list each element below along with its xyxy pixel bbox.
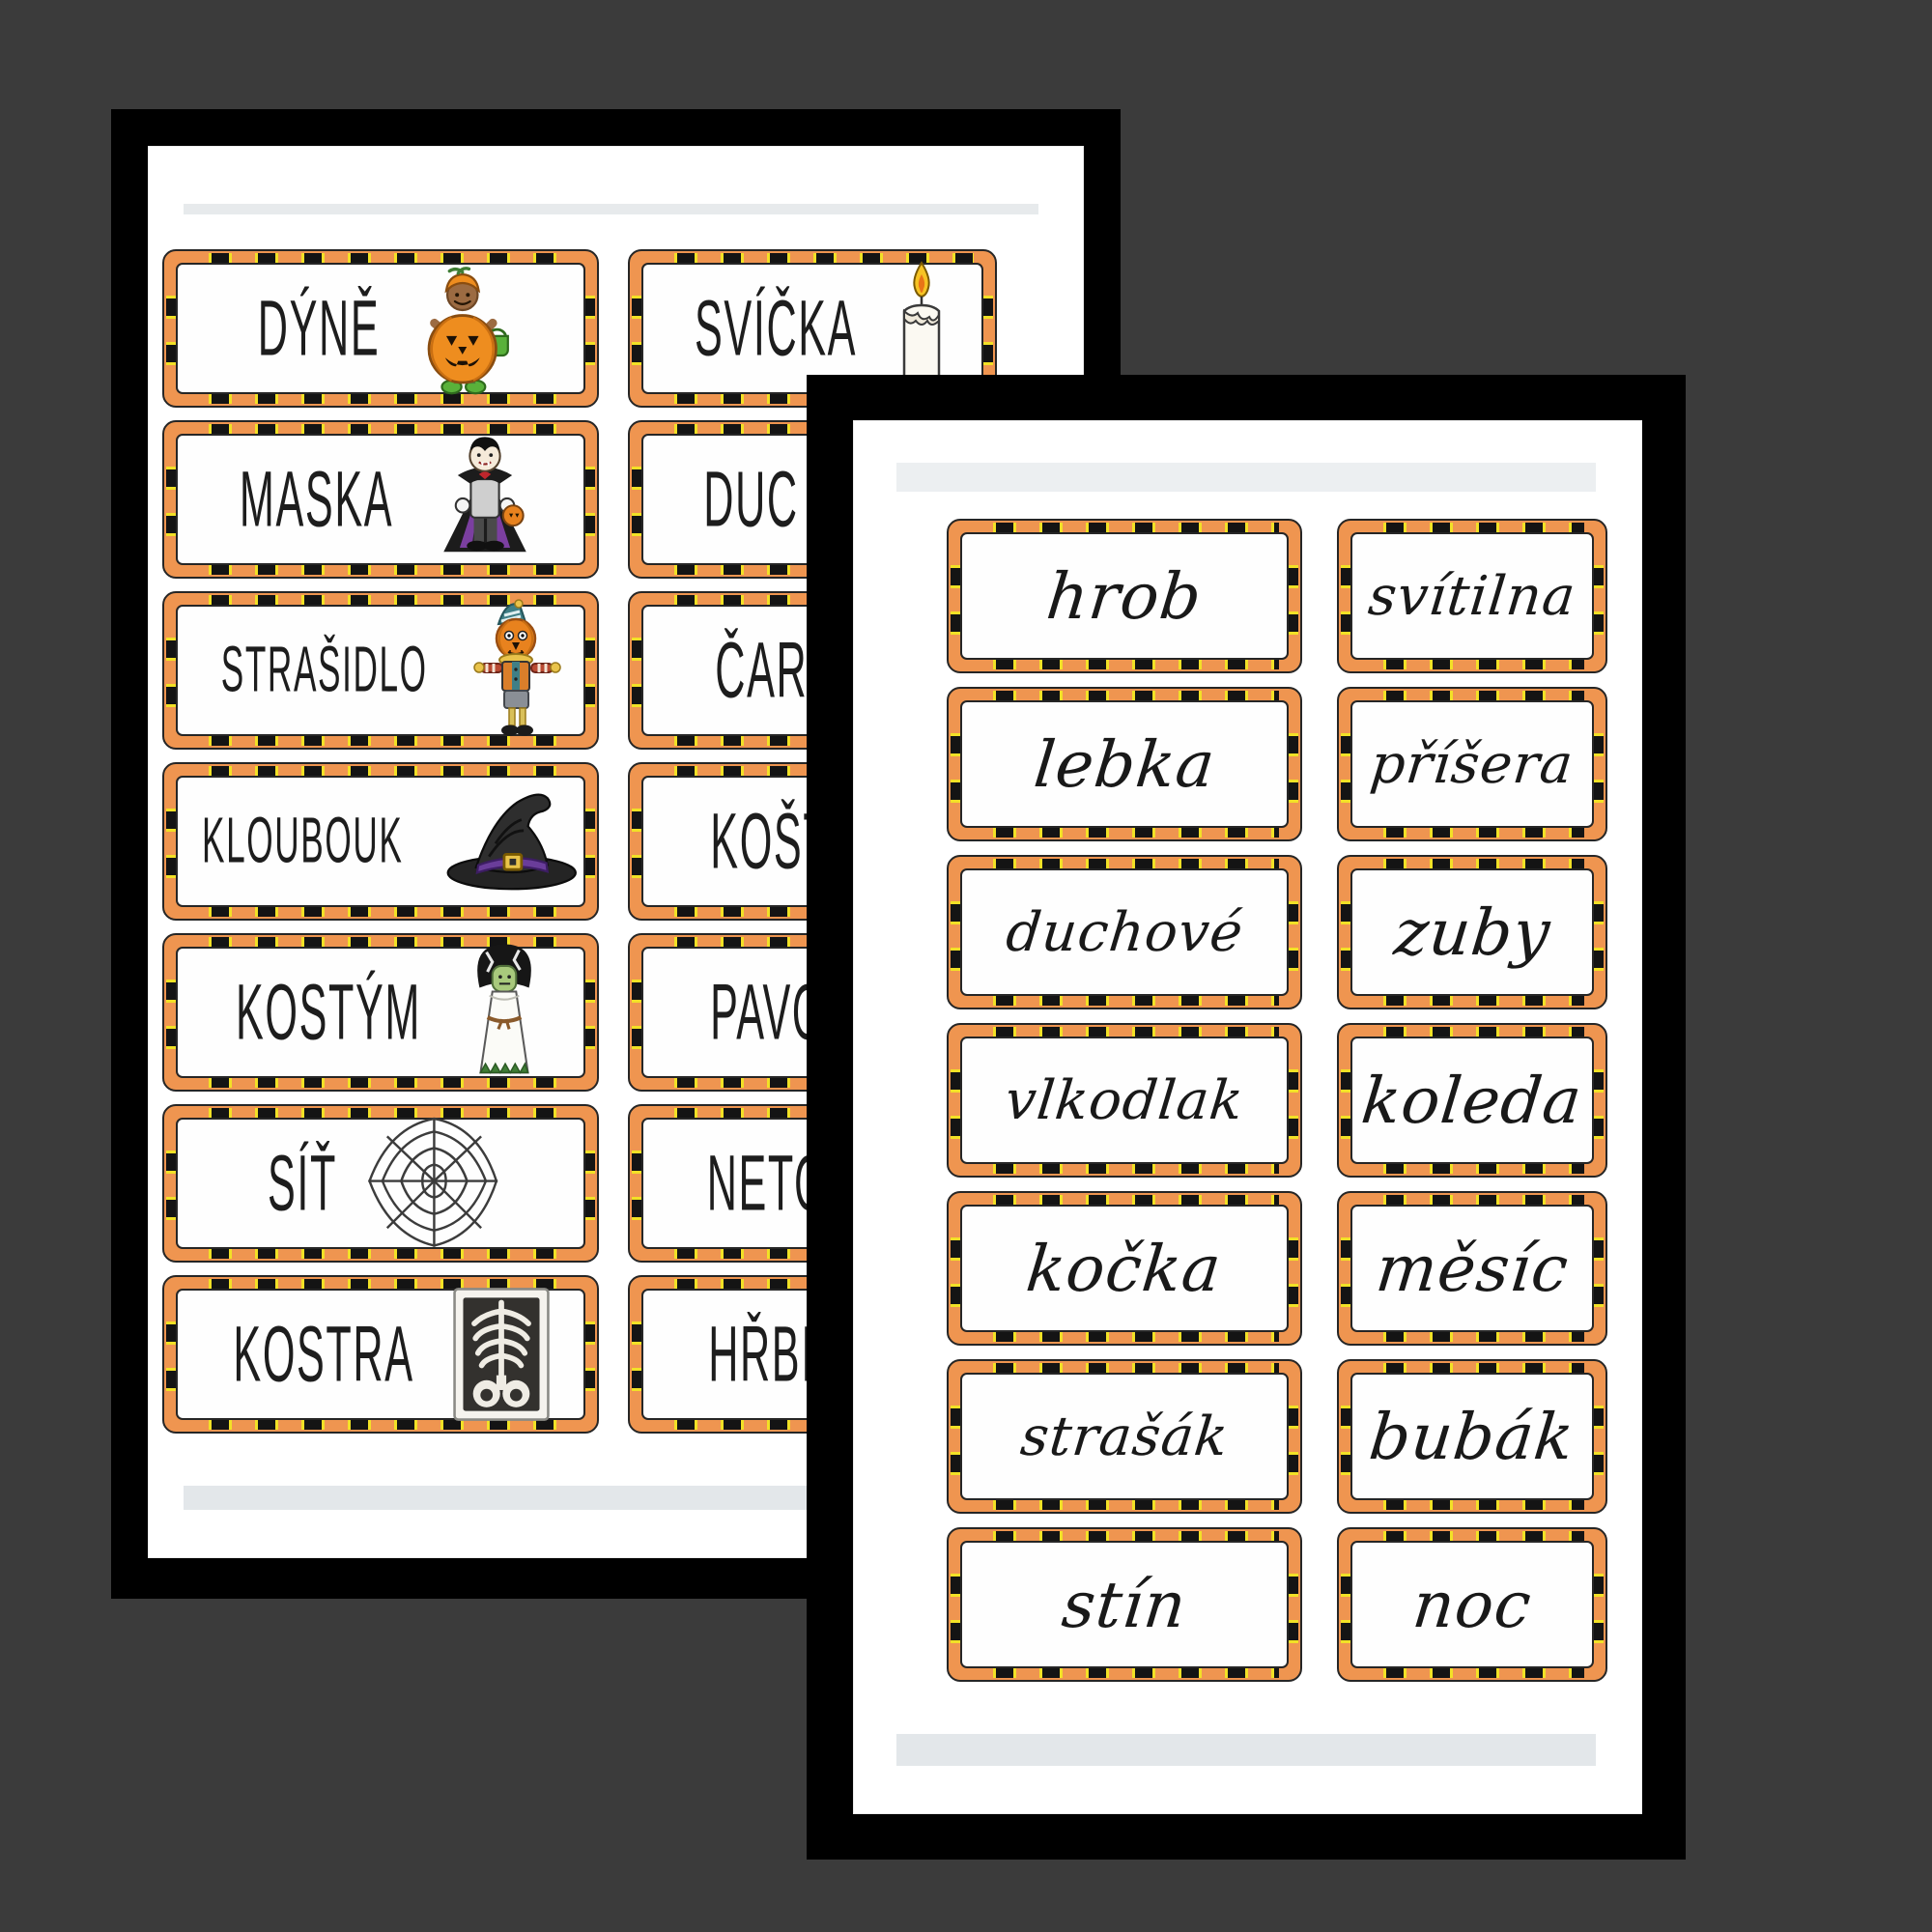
back-card-left: KOSTRA bbox=[162, 1275, 599, 1434]
back-card-left: STRAŠIDLO bbox=[162, 591, 599, 750]
card-stripe-border bbox=[1360, 1531, 1584, 1541]
pumpkin-kid-icon bbox=[411, 264, 519, 393]
card-stripe-border bbox=[970, 1164, 1279, 1174]
card-stripe-border bbox=[1341, 1046, 1350, 1154]
card-stripe-border bbox=[970, 1195, 1279, 1205]
card-content: noc bbox=[1352, 1543, 1592, 1666]
card-stripe-border bbox=[1594, 1550, 1604, 1659]
card-stripe-border bbox=[1360, 1332, 1584, 1342]
card-stripe-border bbox=[970, 1027, 1279, 1037]
screenshot-canvas: DÝNĚ SVÍČKA MASKA DUC STRAŠIDLO bbox=[0, 0, 1932, 1932]
front-card-left: kočka bbox=[947, 1191, 1302, 1346]
vampire-icon bbox=[429, 433, 541, 566]
witch-hat-icon bbox=[443, 787, 584, 895]
card-stripe-border bbox=[970, 660, 1279, 669]
front-card-left: stín bbox=[947, 1527, 1302, 1682]
card-stripe-border bbox=[1289, 1382, 1298, 1491]
spider-web-icon bbox=[361, 1117, 502, 1250]
card-stripe-border bbox=[1360, 996, 1584, 1006]
card-content: STRAŠIDLO bbox=[178, 607, 583, 734]
card-stripe-border bbox=[1360, 660, 1584, 669]
card-content: SÍŤ bbox=[178, 1120, 583, 1247]
front-card-right: bubák bbox=[1337, 1359, 1607, 1514]
card-word: zuby bbox=[1391, 895, 1554, 970]
card-word: noc bbox=[1409, 1568, 1535, 1642]
card-stripe-border bbox=[1360, 1668, 1584, 1678]
front-worksheet-page: hrob svítilna lebka příšera duchové bbox=[853, 420, 1642, 1814]
card-stripe-border bbox=[1289, 710, 1298, 818]
skeleton-icon bbox=[452, 1286, 551, 1423]
card-word: KOSTÝM bbox=[236, 967, 421, 1058]
card-stripe-border bbox=[1341, 878, 1350, 986]
card-stripe-border bbox=[1594, 542, 1604, 650]
front-card-left: lebka bbox=[947, 687, 1302, 841]
card-stripe-border bbox=[166, 1127, 176, 1239]
front-card-left: vlkodlak bbox=[947, 1023, 1302, 1178]
card-stripe-border bbox=[166, 1298, 176, 1410]
card-stripe-border bbox=[1289, 1214, 1298, 1322]
card-word: bubák bbox=[1366, 1400, 1577, 1474]
card-stripe-border bbox=[1360, 691, 1584, 700]
card-stripe-border bbox=[585, 785, 595, 897]
card-stripe-border bbox=[185, 907, 576, 917]
card-word: KLOUBOUK bbox=[202, 805, 403, 878]
back-card-left: DÝNĚ bbox=[162, 249, 599, 408]
card-content: vlkodlak bbox=[962, 1038, 1287, 1162]
card-word: DUC bbox=[703, 454, 798, 545]
page-edge-strip bbox=[896, 463, 1596, 492]
card-content: duchové bbox=[962, 870, 1287, 994]
card-stripe-border bbox=[1341, 1550, 1350, 1659]
card-content: měsíc bbox=[1352, 1207, 1592, 1330]
card-word: koleda bbox=[1358, 1064, 1586, 1138]
card-stripe-border bbox=[585, 614, 595, 726]
card-word: MASKA bbox=[240, 454, 393, 545]
front-card-right: měsíc bbox=[1337, 1191, 1607, 1346]
card-stripe-border bbox=[1289, 878, 1298, 986]
card-word: svítilna bbox=[1366, 565, 1579, 628]
front-card-right: zuby bbox=[1337, 855, 1607, 1009]
card-content: KOSTRA bbox=[178, 1291, 583, 1418]
back-card-left: KOSTÝM bbox=[162, 933, 599, 1092]
card-stripe-border bbox=[1289, 1046, 1298, 1154]
card-stripe-border bbox=[632, 785, 641, 897]
card-stripe-border bbox=[970, 859, 1279, 868]
card-stripe-border bbox=[1341, 1382, 1350, 1491]
card-stripe-border bbox=[970, 1531, 1279, 1541]
card-word: příšera bbox=[1368, 733, 1577, 796]
card-content: MASKA bbox=[178, 436, 583, 563]
card-content: lebka bbox=[962, 702, 1287, 826]
back-card-left: KLOUBOUK bbox=[162, 762, 599, 921]
card-stripe-border bbox=[166, 785, 176, 897]
card-stripe-border bbox=[970, 691, 1279, 700]
card-stripe-border bbox=[1360, 523, 1584, 532]
card-stripe-border bbox=[166, 443, 176, 555]
card-stripe-border bbox=[951, 710, 960, 818]
card-stripe-border bbox=[951, 1214, 960, 1322]
card-stripe-border bbox=[632, 614, 641, 726]
card-content: hrob bbox=[962, 534, 1287, 658]
card-word: DÝNĚ bbox=[258, 283, 380, 374]
front-card-right: koleda bbox=[1337, 1023, 1607, 1178]
card-stripe-border bbox=[1594, 1046, 1604, 1154]
front-card-left: hrob bbox=[947, 519, 1302, 673]
card-stripe-border bbox=[1594, 878, 1604, 986]
card-stripe-border bbox=[632, 956, 641, 1068]
card-word: KOSTRA bbox=[233, 1309, 413, 1400]
card-word: STRAŠIDLO bbox=[221, 634, 428, 707]
card-word: měsíc bbox=[1373, 1232, 1573, 1306]
card-stripe-border bbox=[585, 1127, 595, 1239]
card-stripe-border bbox=[970, 1332, 1279, 1342]
back-card-left: MASKA bbox=[162, 420, 599, 579]
front-card-left: duchové bbox=[947, 855, 1302, 1009]
card-stripe-border bbox=[585, 956, 595, 1068]
card-stripe-border bbox=[1289, 1550, 1298, 1659]
card-stripe-border bbox=[1289, 542, 1298, 650]
card-content: koleda bbox=[1352, 1038, 1592, 1162]
card-word: strašák bbox=[1017, 1406, 1231, 1468]
card-stripe-border bbox=[632, 1127, 641, 1239]
front-card-right: svítilna bbox=[1337, 519, 1607, 673]
card-stripe-border bbox=[970, 1363, 1279, 1373]
card-word: vlkodlak bbox=[1002, 1069, 1246, 1132]
card-word: SVÍČKA bbox=[695, 283, 857, 374]
card-content: strašák bbox=[962, 1375, 1287, 1498]
card-stripe-border bbox=[970, 1668, 1279, 1678]
card-content: zuby bbox=[1352, 870, 1592, 994]
card-word: stín bbox=[1059, 1568, 1190, 1642]
card-stripe-border bbox=[585, 272, 595, 384]
card-stripe-border bbox=[632, 443, 641, 555]
card-stripe-border bbox=[585, 443, 595, 555]
card-stripe-border bbox=[1360, 1195, 1584, 1205]
card-stripe-border bbox=[1341, 542, 1350, 650]
scarecrow-icon bbox=[469, 604, 566, 737]
candle-icon bbox=[893, 267, 951, 390]
back-card-left: SÍŤ bbox=[162, 1104, 599, 1263]
card-stripe-border bbox=[970, 1500, 1279, 1510]
card-stripe-border bbox=[970, 996, 1279, 1006]
front-card-right: příšera bbox=[1337, 687, 1607, 841]
card-stripe-border bbox=[632, 272, 641, 384]
card-stripe-border bbox=[983, 272, 993, 384]
card-stripe-border bbox=[951, 1382, 960, 1491]
front-card-left: strašák bbox=[947, 1359, 1302, 1514]
card-stripe-border bbox=[1341, 1214, 1350, 1322]
frankenstein-bride-icon bbox=[460, 945, 549, 1080]
card-stripe-border bbox=[1360, 828, 1584, 838]
card-stripe-border bbox=[166, 272, 176, 384]
card-word: hrob bbox=[1043, 559, 1206, 634]
card-content: kočka bbox=[962, 1207, 1287, 1330]
front-card-right: noc bbox=[1337, 1527, 1607, 1682]
card-stripe-border bbox=[1341, 710, 1350, 818]
card-stripe-border bbox=[1594, 1382, 1604, 1491]
card-content: svítilna bbox=[1352, 534, 1592, 658]
card-word: kočka bbox=[1023, 1232, 1225, 1306]
card-word: SÍŤ bbox=[268, 1138, 337, 1229]
card-stripe-border bbox=[951, 542, 960, 650]
card-content: stín bbox=[962, 1543, 1287, 1666]
card-stripe-border bbox=[1360, 1500, 1584, 1510]
card-stripe-border bbox=[951, 1550, 960, 1659]
card-stripe-border bbox=[1360, 859, 1584, 868]
front-worksheet-sheet: hrob svítilna lebka příšera duchové bbox=[807, 375, 1686, 1860]
card-content: příšera bbox=[1352, 702, 1592, 826]
card-content: DÝNĚ bbox=[178, 265, 583, 392]
card-stripe-border bbox=[1360, 1164, 1584, 1174]
card-word: duchové bbox=[1003, 901, 1246, 964]
card-content: KOSTÝM bbox=[178, 949, 583, 1076]
cursive-word-card-grid: hrob svítilna lebka příšera duchové bbox=[947, 519, 1607, 1682]
card-stripe-border bbox=[632, 1298, 641, 1410]
page-edge-strip bbox=[896, 1734, 1596, 1766]
card-stripe-border bbox=[185, 766, 576, 776]
card-stripe-border bbox=[951, 878, 960, 986]
card-stripe-border bbox=[951, 1046, 960, 1154]
card-stripe-border bbox=[970, 523, 1279, 532]
page-edge-strip bbox=[184, 204, 1038, 214]
card-stripe-border bbox=[1360, 1363, 1584, 1373]
card-content: SVÍČKA bbox=[643, 265, 981, 392]
card-stripe-border bbox=[585, 1298, 595, 1410]
card-content: bubák bbox=[1352, 1375, 1592, 1498]
card-stripe-border bbox=[1594, 710, 1604, 818]
card-stripe-border bbox=[1360, 1027, 1584, 1037]
card-stripe-border bbox=[1594, 1214, 1604, 1322]
card-word: lebka bbox=[1031, 727, 1219, 802]
card-stripe-border bbox=[166, 956, 176, 1068]
card-stripe-border bbox=[166, 614, 176, 726]
card-stripe-border bbox=[970, 828, 1279, 838]
card-content: KLOUBOUK bbox=[178, 778, 583, 905]
